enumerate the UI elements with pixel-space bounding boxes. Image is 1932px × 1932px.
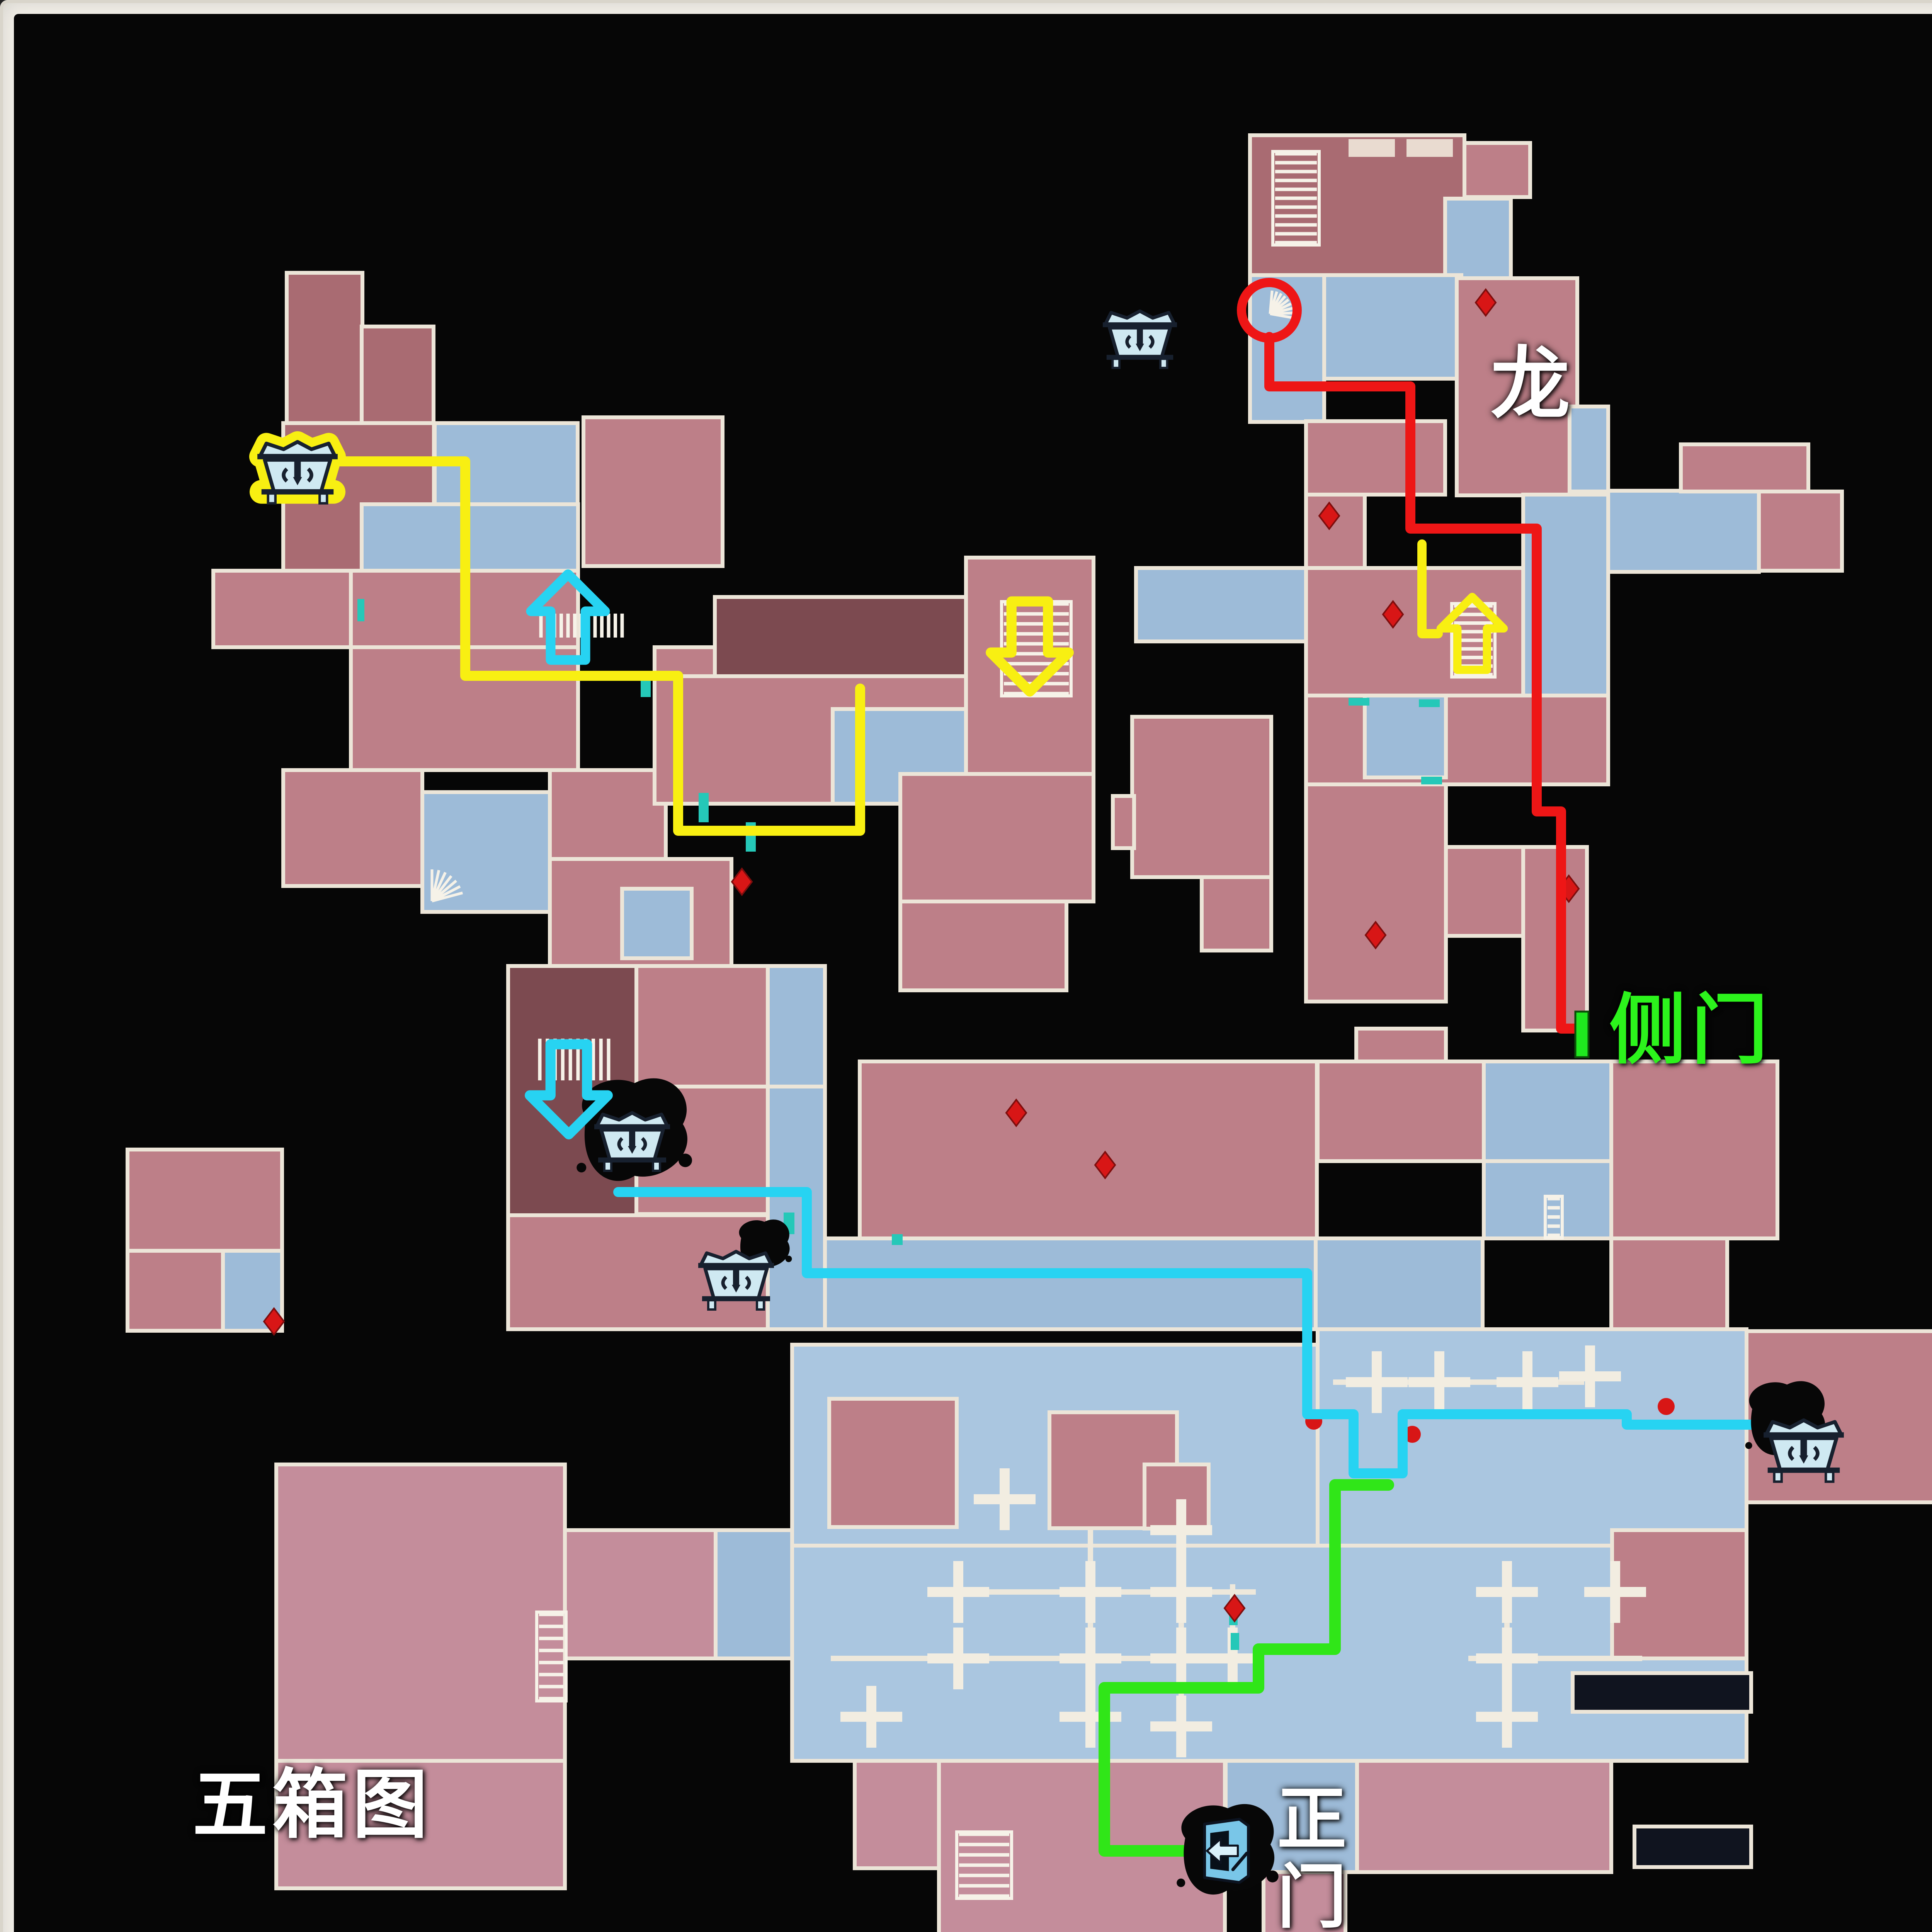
chest-latch bbox=[294, 457, 301, 478]
door-tick bbox=[699, 793, 709, 822]
room bbox=[287, 273, 362, 423]
screenshot-frame: 龙 侧门 正 门 五箱图 bbox=[0, 0, 1932, 1932]
side-door-label: 侧门 bbox=[1609, 987, 1773, 1073]
chest-latch bbox=[629, 1127, 635, 1147]
main-gate-label-line1: 正 bbox=[1277, 1781, 1347, 1859]
ink-splash-drop bbox=[1177, 1879, 1185, 1887]
room bbox=[128, 1150, 282, 1251]
room bbox=[860, 1061, 1317, 1238]
door-tick bbox=[1231, 1633, 1239, 1650]
room bbox=[1523, 847, 1587, 1031]
door-tick bbox=[357, 599, 364, 621]
ink-splash-drop bbox=[577, 1163, 586, 1172]
room bbox=[622, 889, 692, 958]
room bbox=[213, 571, 351, 647]
chest-foot bbox=[708, 1300, 715, 1310]
chest-foot bbox=[1160, 359, 1167, 368]
room bbox=[1570, 406, 1608, 492]
room bbox=[855, 1761, 939, 1868]
item-marker-dot bbox=[1658, 1398, 1675, 1415]
door-tick bbox=[1419, 699, 1440, 707]
main-gate-label-line2: 门 bbox=[1277, 1859, 1347, 1932]
room bbox=[1484, 1061, 1611, 1161]
room bbox=[825, 1238, 1316, 1329]
door-tick bbox=[1421, 777, 1442, 784]
room bbox=[1136, 568, 1306, 641]
chest-latch bbox=[733, 1265, 739, 1286]
main-gate-label: 正 门 bbox=[1277, 1781, 1347, 1932]
chest-latch bbox=[1801, 1435, 1807, 1456]
room bbox=[1759, 492, 1842, 571]
room bbox=[1316, 1238, 1483, 1329]
room bbox=[276, 1464, 565, 1761]
room bbox=[1464, 143, 1530, 197]
room bbox=[715, 597, 966, 676]
map-canvas bbox=[0, 0, 1932, 1932]
room bbox=[966, 558, 1094, 774]
ink-splash-drop bbox=[1745, 1442, 1752, 1449]
side-door-marker bbox=[1575, 1012, 1588, 1057]
room bbox=[900, 774, 1094, 901]
room bbox=[716, 1530, 792, 1658]
room bbox=[1365, 696, 1446, 777]
chest-latch bbox=[1137, 325, 1143, 344]
room bbox=[1611, 1238, 1727, 1330]
room bbox=[1573, 1673, 1751, 1712]
chest-foot bbox=[268, 493, 276, 503]
chest-foot bbox=[1826, 1472, 1833, 1481]
room bbox=[1608, 491, 1759, 572]
chest-foot bbox=[604, 1162, 611, 1171]
ink-splash-drop bbox=[679, 1154, 692, 1167]
room bbox=[283, 770, 422, 886]
window-detail bbox=[1406, 139, 1453, 157]
room bbox=[829, 1399, 957, 1527]
chest-icon-2 bbox=[1103, 311, 1177, 368]
room bbox=[1357, 1761, 1611, 1872]
room bbox=[1318, 1061, 1484, 1161]
room bbox=[1634, 1827, 1751, 1867]
room bbox=[768, 1087, 825, 1329]
ink-splash-drop bbox=[786, 1256, 792, 1262]
room bbox=[1324, 275, 1461, 379]
room bbox=[1306, 696, 1608, 784]
chest-foot bbox=[757, 1300, 764, 1310]
room bbox=[128, 1251, 223, 1331]
door-tick bbox=[1349, 698, 1369, 706]
room bbox=[583, 417, 723, 566]
room bbox=[1611, 1061, 1777, 1238]
chest-foot bbox=[1112, 359, 1119, 368]
chest-foot bbox=[1774, 1472, 1782, 1481]
room bbox=[1445, 199, 1511, 278]
room bbox=[1113, 796, 1134, 848]
room bbox=[565, 1530, 716, 1658]
room bbox=[1681, 444, 1808, 492]
window-detail bbox=[1349, 139, 1395, 157]
chest-foot bbox=[653, 1162, 660, 1171]
door-tick bbox=[892, 1234, 903, 1245]
room bbox=[1306, 784, 1446, 1002]
room bbox=[1250, 275, 1324, 422]
chest-icon-1 bbox=[257, 442, 338, 503]
room bbox=[768, 966, 825, 1087]
map-title: 五箱图 bbox=[192, 1763, 432, 1847]
room bbox=[1132, 717, 1271, 877]
room bbox=[1446, 847, 1523, 936]
chest-foot bbox=[320, 493, 327, 503]
room bbox=[362, 327, 434, 423]
room bbox=[550, 770, 666, 859]
room bbox=[1306, 421, 1445, 495]
room bbox=[900, 901, 1066, 990]
room bbox=[1202, 877, 1271, 951]
room bbox=[636, 966, 768, 1087]
dragon-room-label: 龙 bbox=[1491, 340, 1570, 429]
